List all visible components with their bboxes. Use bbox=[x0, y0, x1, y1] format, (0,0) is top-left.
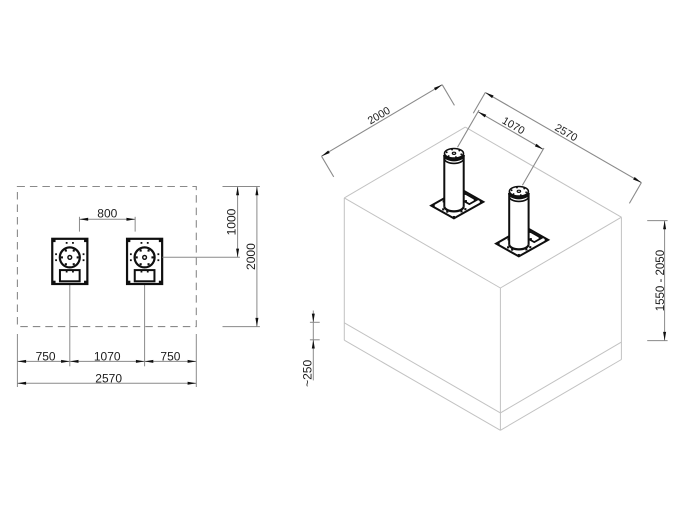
svg-text:800: 800 bbox=[97, 206, 117, 220]
svg-text:1550 - 2050: 1550 - 2050 bbox=[655, 250, 667, 311]
svg-text:2570: 2570 bbox=[95, 371, 122, 385]
svg-text:750: 750 bbox=[36, 349, 56, 363]
svg-text:1000: 1000 bbox=[224, 208, 238, 235]
svg-text:2000: 2000 bbox=[244, 243, 258, 270]
svg-text:750: 750 bbox=[160, 349, 180, 363]
svg-text:1070: 1070 bbox=[94, 349, 121, 363]
svg-text:~250: ~250 bbox=[301, 360, 315, 387]
